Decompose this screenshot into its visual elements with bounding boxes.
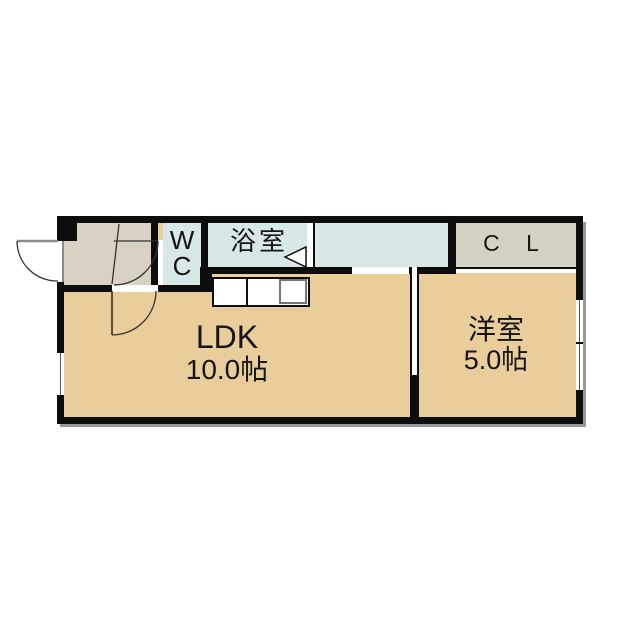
kitchen-counter-divider	[246, 278, 248, 306]
floor-plan: W C 浴室 C L LDK 10.0帖 洋室 5.0帖	[0, 0, 640, 640]
bathroom-label: 浴室	[208, 228, 310, 254]
entrance-corner-pillar	[57, 216, 77, 241]
shadow-bottom	[60, 424, 586, 427]
window-right-mullion	[576, 342, 583, 344]
window-right-sash	[579, 300, 580, 390]
wall-washroom-closet	[448, 216, 456, 274]
washroom-door-opening	[352, 267, 409, 274]
western-room-size: 5.0帖	[421, 345, 571, 376]
room-entrance	[64, 223, 151, 285]
ldk-label: LDK 10.0帖	[132, 321, 322, 386]
wall-ldk-western-opening	[410, 267, 419, 375]
wc-label-line2: C	[163, 253, 201, 279]
window-left-sash	[60, 353, 61, 395]
wall-ldk-western-solid	[410, 375, 419, 424]
wall-entrance-bottom-left	[57, 285, 112, 292]
wc-label-line1: W	[163, 227, 201, 253]
closet-bottom-gap	[456, 269, 576, 273]
closet-label: C L	[456, 232, 576, 255]
ldk-name: LDK	[132, 321, 322, 354]
western-room-name: 洋室	[421, 314, 571, 345]
ldk-size: 10.0帖	[132, 354, 322, 386]
room-washroom	[315, 223, 448, 268]
entrance-door-arc	[17, 241, 58, 281]
wall-entrance-wc	[151, 223, 158, 292]
wc-label: W C	[163, 227, 201, 279]
wall-kitchen-stub	[200, 274, 212, 292]
shadow-right	[583, 222, 586, 424]
entrance-ldk-door-opening	[112, 285, 158, 292]
entrance-door-frame	[62, 241, 64, 282]
kitchen-sink	[279, 279, 307, 304]
western-room-label: 洋室 5.0帖	[421, 314, 571, 376]
